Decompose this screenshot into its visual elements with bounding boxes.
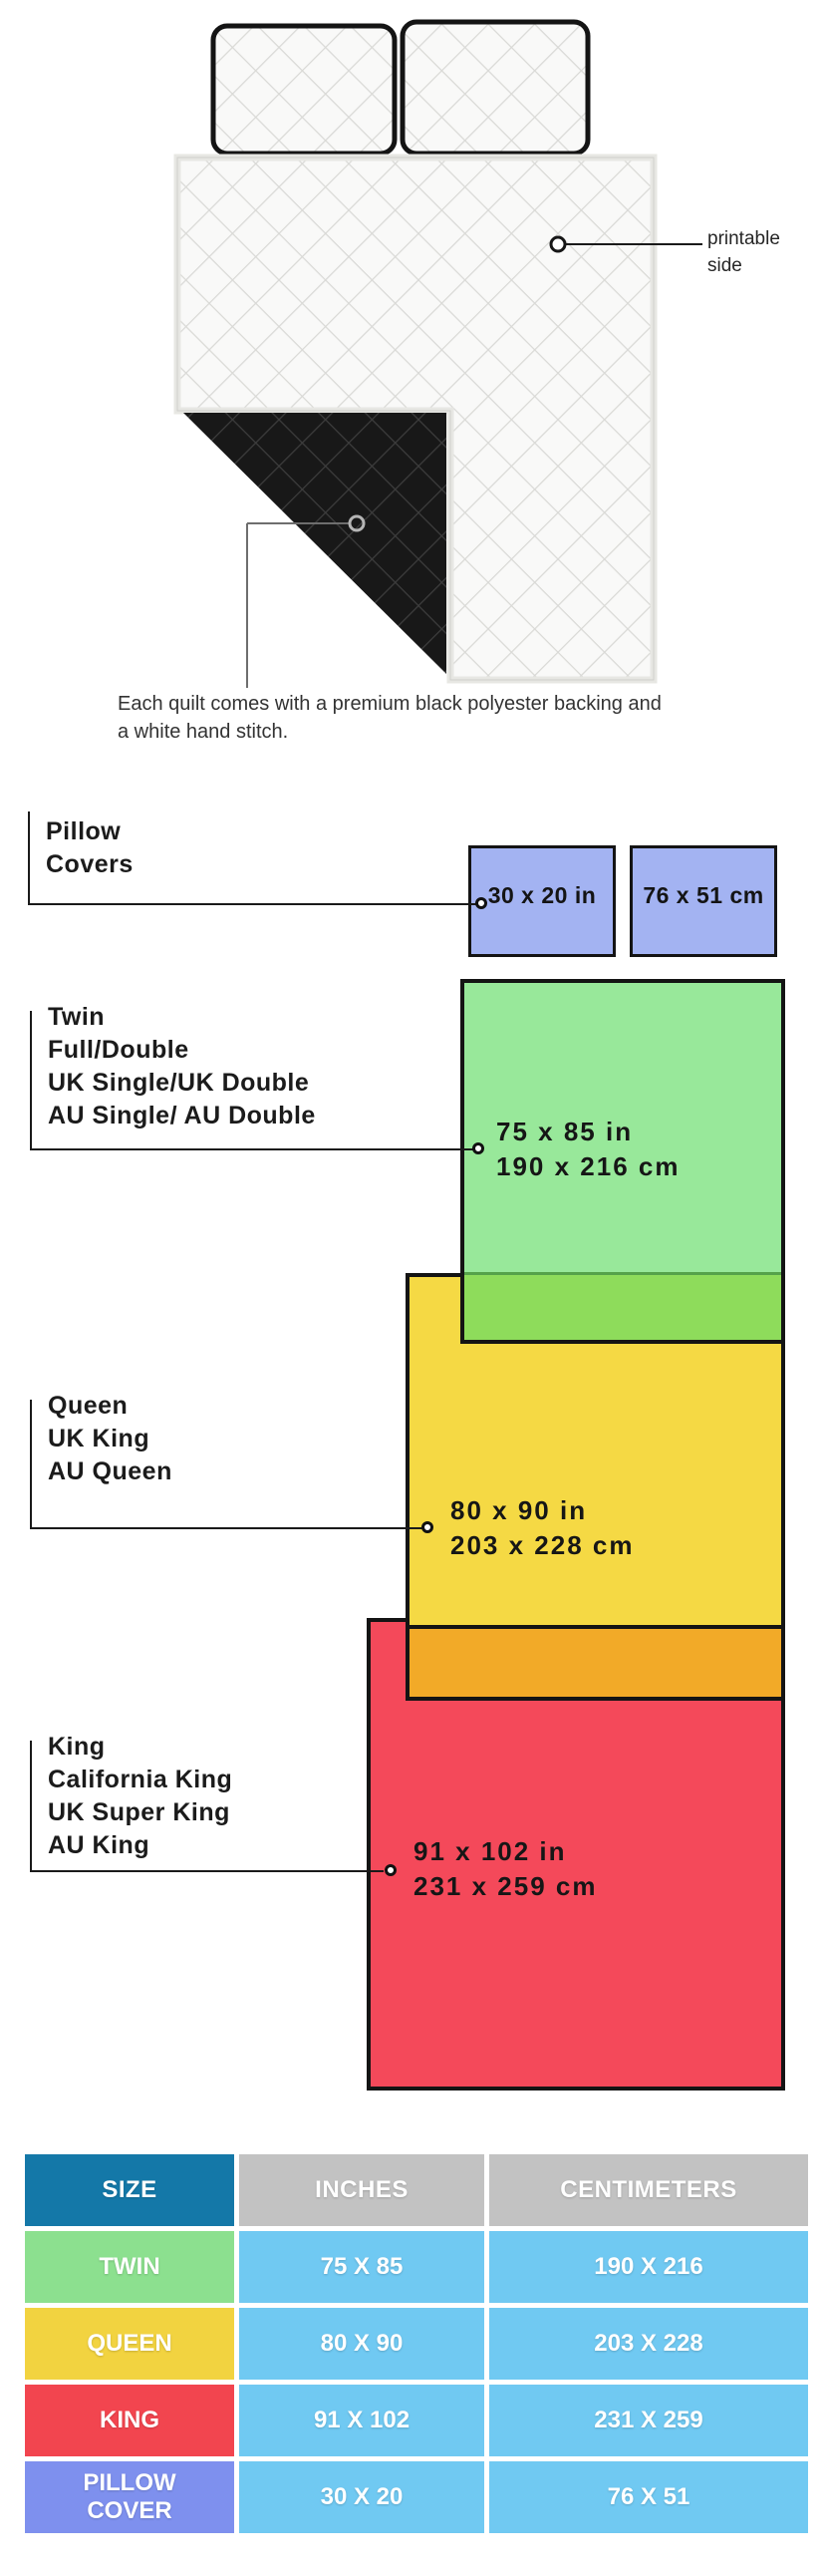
table-row-king-size: KING xyxy=(25,2385,234,2456)
king-name: AU King xyxy=(48,1829,232,1862)
queen-name: UK King xyxy=(48,1423,172,1455)
queen-king-overlap-band xyxy=(410,1625,781,1697)
pillow-connector-v xyxy=(28,811,30,905)
printable-side-marker xyxy=(551,237,565,251)
table-header-centimeters: CENTIMETERS xyxy=(489,2154,808,2226)
table-row-king-inches: 91 X 102 xyxy=(239,2385,484,2456)
king-title: King California King UK Super King AU Ki… xyxy=(48,1731,232,1862)
table-header-size: SIZE xyxy=(25,2154,234,2226)
printable-side-label: printable side xyxy=(707,226,795,279)
pillow-right xyxy=(403,22,588,154)
queen-dimensions: 80 x 90 in 203 x 228 cm xyxy=(450,1493,634,1563)
king-connector-dot xyxy=(385,1864,397,1876)
king-name: King xyxy=(48,1731,232,1764)
twin-connector-dot xyxy=(472,1142,484,1154)
queen-name: Queen xyxy=(48,1390,172,1423)
table-row-twin-cm: 190 X 216 xyxy=(489,2231,808,2303)
twin-name: UK Single/UK Double xyxy=(48,1067,316,1100)
twin-title: Twin Full/Double UK Single/UK Double AU … xyxy=(48,1001,316,1132)
quilt-caption: Each quilt comes with a premium black po… xyxy=(118,690,672,746)
twin-name: Full/Double xyxy=(48,1034,316,1067)
table-row-queen-inches: 80 X 90 xyxy=(239,2308,484,2380)
table-row-king-cm: 231 X 259 xyxy=(489,2385,808,2456)
twin-dimensions-inches: 75 x 85 in xyxy=(496,1115,680,1149)
twin-dimensions-cm: 190 x 216 cm xyxy=(496,1149,680,1184)
twin-queen-overlap-tint xyxy=(464,1272,781,1340)
twin-connector-h xyxy=(30,1148,476,1150)
table-row-queen-size: QUEEN xyxy=(25,2308,234,2380)
quilt-black-backing xyxy=(183,413,446,674)
quilt-illustration xyxy=(0,0,825,698)
table-row-pillow-inches: 30 X 20 xyxy=(239,2461,484,2533)
king-name: UK Super King xyxy=(48,1796,232,1829)
table-row-queen-cm: 203 X 228 xyxy=(489,2308,808,2380)
pillow-left xyxy=(213,26,395,154)
king-connector-v xyxy=(30,1741,32,1872)
king-dimensions-cm: 231 x 259 cm xyxy=(413,1869,597,1904)
queen-name: AU Queen xyxy=(48,1455,172,1488)
twin-name: AU Single/ AU Double xyxy=(48,1100,316,1132)
table-row-twin-inches: 75 X 85 xyxy=(239,2231,484,2303)
queen-connector-dot xyxy=(421,1521,433,1533)
king-name: California King xyxy=(48,1764,232,1796)
twin-dimensions: 75 x 85 in 190 x 216 cm xyxy=(496,1115,680,1184)
king-connector-h xyxy=(30,1870,384,1872)
queen-connector-h xyxy=(30,1527,422,1529)
size-chart-infographic: printable side Each quilt comes with a p… xyxy=(0,0,825,2576)
table-row-pillow-size: PILLOW COVER xyxy=(25,2461,234,2533)
king-dimensions-inches: 91 x 102 in xyxy=(413,1834,597,1869)
pillow-box-centimeters: 76 x 51 cm xyxy=(630,845,777,957)
size-table: SIZE INCHES CENTIMETERS TWIN 75 X 85 190… xyxy=(25,2154,808,2533)
pillow-covers-title: Pillow Covers xyxy=(46,815,165,881)
twin-name: Twin xyxy=(48,1001,316,1034)
queen-dimensions-inches: 80 x 90 in xyxy=(450,1493,634,1528)
king-dimensions: 91 x 102 in 231 x 259 cm xyxy=(413,1834,597,1904)
twin-connector-v xyxy=(30,1011,32,1150)
queen-title: Queen UK King AU Queen xyxy=(48,1390,172,1488)
table-row-pillow-size-text: PILLOW COVER xyxy=(70,2469,189,2524)
pillow-box-inches: 30 x 20 in xyxy=(468,845,616,957)
table-row-pillow-cm: 76 X 51 xyxy=(489,2461,808,2533)
table-header-inches: INCHES xyxy=(239,2154,484,2226)
table-row-twin-size: TWIN xyxy=(25,2231,234,2303)
queen-connector-v xyxy=(30,1400,32,1529)
pillow-connector-h xyxy=(28,903,478,905)
queen-dimensions-cm: 203 x 228 cm xyxy=(450,1528,634,1563)
pillow-connector-dot xyxy=(475,897,487,909)
